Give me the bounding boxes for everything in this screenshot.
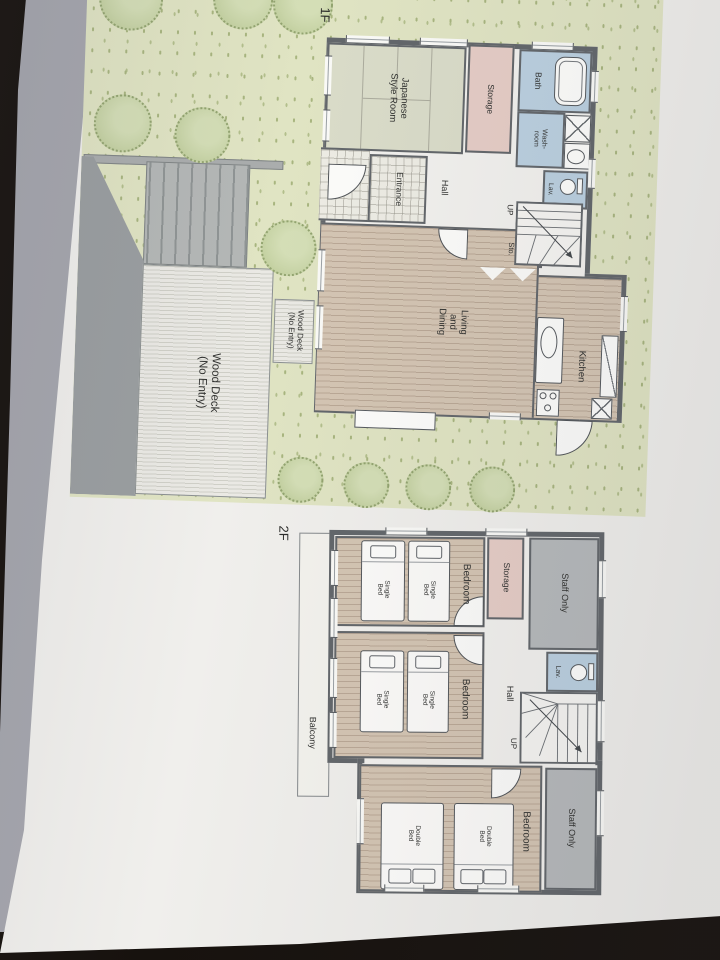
floor-plan-photo: Wood Deck (No Entry) Wood Deck (No Entry… — [0, 0, 720, 960]
balcony-label: Balcony — [307, 717, 318, 749]
single-bed-label: Single Bed — [420, 686, 435, 714]
pillow — [415, 656, 441, 669]
window — [385, 527, 427, 534]
blanket-line — [409, 562, 449, 563]
hall-label-2f: Hall — [505, 686, 515, 702]
stairs-2f — [519, 692, 598, 765]
pillow — [412, 869, 435, 884]
window — [329, 712, 336, 748]
single-bed: Single Bed — [407, 651, 450, 733]
bedroom2-label: Bedroom — [459, 679, 471, 720]
single-bed-label: Single Bed — [375, 575, 390, 603]
blanket-line — [361, 671, 403, 672]
blanket-line — [362, 561, 404, 562]
floor2-plan: 2F Balcony Staff Only Lav. UP Staff Onl — [4, 0, 720, 960]
window — [597, 790, 604, 836]
single-bed: Single Bed — [361, 540, 406, 621]
pillow — [460, 869, 483, 884]
balcony — [297, 533, 331, 797]
pillow — [370, 545, 396, 558]
bedroom3-label: Bedroom — [520, 811, 532, 852]
double-bed: Double Bed — [380, 802, 444, 890]
window — [331, 550, 338, 586]
floor2-title: 2F — [276, 525, 291, 540]
single-bed: Single Bed — [408, 541, 451, 622]
single-bed-label: Single Bed — [421, 576, 436, 604]
window — [330, 658, 337, 698]
staff-only-label-1: Staff Only — [560, 573, 571, 612]
storage-label-2f: Storage — [501, 563, 511, 593]
blanket-line — [454, 864, 512, 866]
window — [330, 598, 337, 638]
window — [477, 885, 519, 892]
pillow — [388, 868, 411, 883]
window — [357, 798, 364, 844]
pillow — [369, 655, 395, 668]
window — [384, 884, 424, 891]
up-label-2f: UP — [509, 738, 518, 749]
staff-only-label-2: Staff Only — [566, 808, 577, 847]
double-bed-label: Double Bed — [477, 820, 492, 852]
bedroom1-label: Bedroom — [460, 564, 472, 605]
lav-label-2f: Lav. — [553, 665, 561, 678]
toilet-tank — [588, 663, 594, 680]
window — [599, 560, 606, 598]
double-bed-label: Double Bed — [406, 820, 421, 852]
single-bed: Single Bed — [360, 650, 405, 732]
window — [485, 528, 527, 535]
blanket-line — [381, 863, 442, 865]
blanket-line — [408, 672, 448, 673]
single-bed-label: Single Bed — [374, 685, 389, 713]
window — [598, 700, 605, 742]
double-bed: Double Bed — [453, 803, 514, 891]
pillow — [416, 546, 442, 559]
toilet-bowl — [570, 664, 587, 681]
pillow — [483, 869, 506, 884]
